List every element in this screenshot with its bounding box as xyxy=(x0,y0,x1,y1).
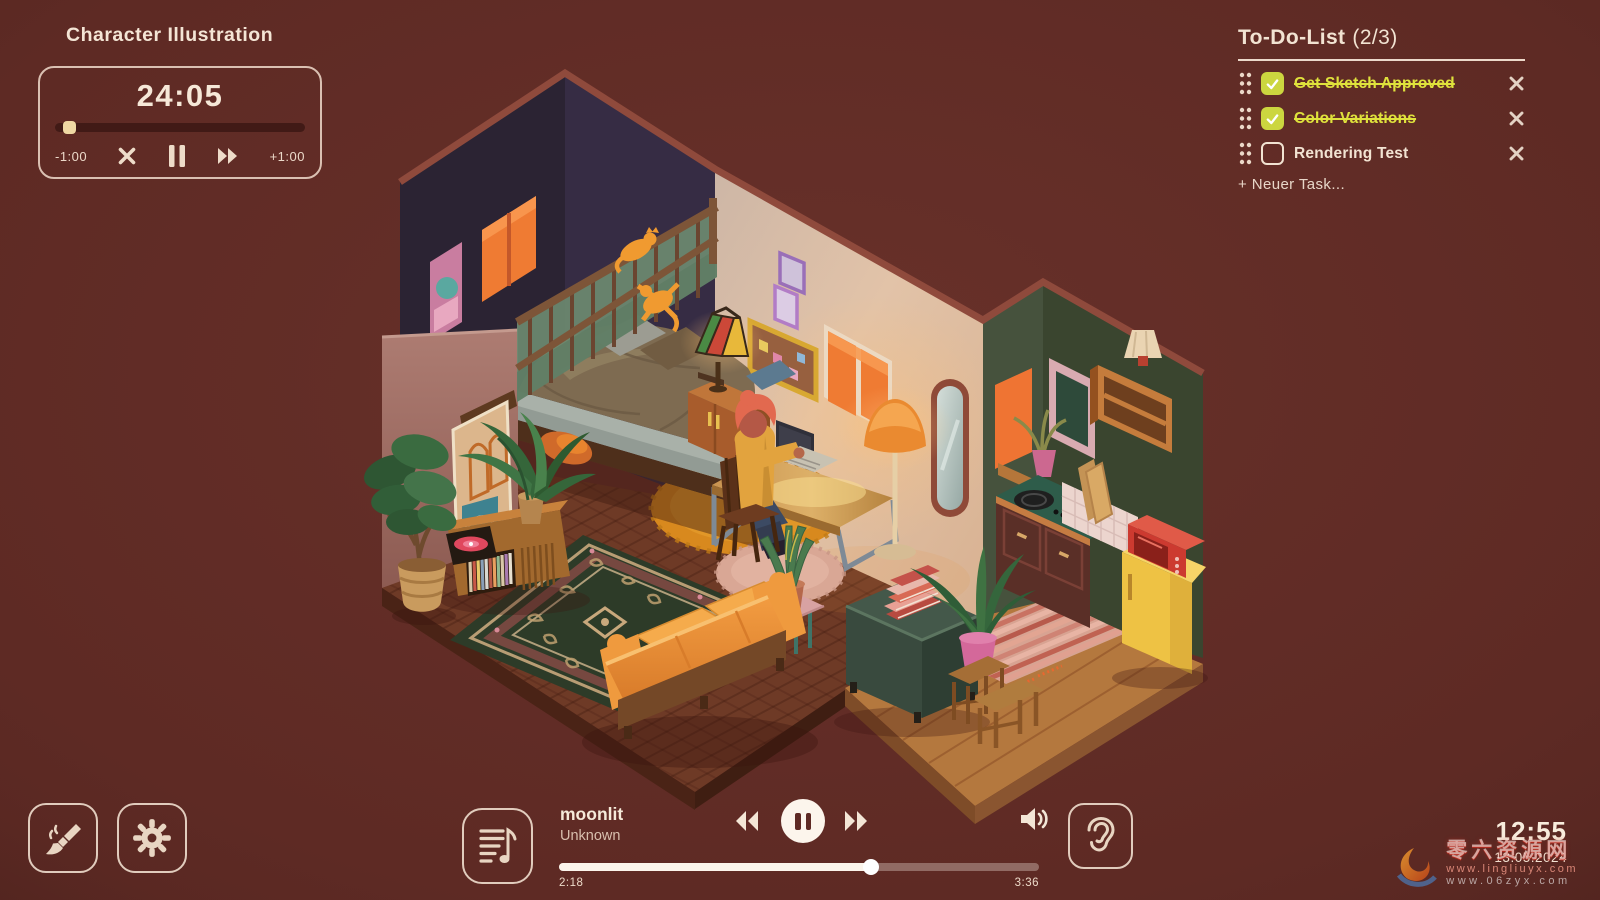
app-screen: Character Illustration 24:05 -1:00 +1:00… xyxy=(0,0,1600,900)
todo-row-1: Get Sketch Approved xyxy=(1238,71,1525,96)
todo-item-label: Color Variations xyxy=(1294,110,1416,128)
timer-cancel-button[interactable] xyxy=(117,146,137,166)
close-icon xyxy=(1508,110,1525,127)
drag-dots-icon xyxy=(1238,71,1252,96)
todo-row-3: Rendering Test xyxy=(1238,141,1525,166)
close-icon xyxy=(1508,145,1525,162)
todo-divider xyxy=(1238,59,1525,61)
timer-skip-button[interactable] xyxy=(217,147,239,165)
window-right xyxy=(995,368,1032,469)
gear-icon xyxy=(132,818,172,858)
fast-forward-icon xyxy=(217,147,239,165)
timer-progress[interactable] xyxy=(55,123,305,132)
total-time: 3:36 xyxy=(989,877,1039,889)
playlist-button[interactable] xyxy=(462,808,533,884)
timer-card: 24:05 -1:00 +1:00 xyxy=(38,66,322,179)
player-progress[interactable] xyxy=(559,863,1039,871)
player-progress-knob[interactable] xyxy=(863,859,879,875)
player-progress-fill xyxy=(559,863,871,871)
timer-plus-button[interactable]: +1:00 xyxy=(270,149,305,164)
todo-checkbox-unchecked[interactable] xyxy=(1261,142,1284,165)
elapsed-time: 2:18 xyxy=(559,877,583,889)
volume-icon xyxy=(1019,805,1049,833)
theme-brush-button[interactable] xyxy=(28,803,98,873)
song-title: moonlit xyxy=(560,804,623,825)
add-task-button[interactable]: + Neuer Task... xyxy=(1238,176,1525,193)
ambient-sound-button[interactable] xyxy=(1068,803,1133,869)
pause-icon xyxy=(167,144,187,168)
paint-brush-icon xyxy=(42,817,84,859)
todo-title: To-Do-List(2/3) xyxy=(1238,26,1525,50)
close-icon xyxy=(117,146,137,166)
clock-date: 13.05.2024 xyxy=(1494,850,1567,865)
todo-item-label: Rendering Test xyxy=(1294,145,1408,163)
pause-bar xyxy=(806,813,812,830)
clock: 12:55 13.05.2024 xyxy=(1494,816,1567,865)
todo-checkbox-checked[interactable] xyxy=(1261,107,1284,130)
todo-delete-button[interactable] xyxy=(1508,145,1525,162)
play-pause-button[interactable] xyxy=(781,799,825,843)
ear-icon xyxy=(1084,816,1118,856)
session-title: Character Illustration xyxy=(66,24,322,47)
session-panel: Character Illustration 24:05 -1:00 +1:00 xyxy=(38,24,322,179)
song-artist: Unknown xyxy=(560,828,620,844)
previous-track-button[interactable] xyxy=(735,810,759,837)
check-icon xyxy=(1265,77,1280,91)
drag-handle-icon[interactable] xyxy=(1238,71,1252,96)
drag-handle-icon[interactable] xyxy=(1238,106,1252,131)
volume-button[interactable] xyxy=(1019,805,1049,838)
clock-time: 12:55 xyxy=(1494,816,1567,847)
rewind-icon xyxy=(735,810,759,832)
playlist-music-icon xyxy=(477,823,519,869)
check-icon xyxy=(1265,112,1280,126)
todo-counter: (2/3) xyxy=(1352,26,1397,49)
next-track-button[interactable] xyxy=(844,810,868,837)
drag-dots-icon xyxy=(1238,106,1252,131)
todo-checkbox-checked[interactable] xyxy=(1261,72,1284,95)
timer-pause-button[interactable] xyxy=(167,144,187,168)
todo-title-text: To-Do-List xyxy=(1238,26,1345,49)
todo-row-2: Color Variations xyxy=(1238,106,1525,131)
drag-handle-icon[interactable] xyxy=(1238,141,1252,166)
timer-countdown: 24:05 xyxy=(55,78,305,114)
close-icon xyxy=(1508,75,1525,92)
fast-forward-icon xyxy=(844,810,868,832)
timer-controls: -1:00 +1:00 xyxy=(55,144,305,168)
todo-delete-button[interactable] xyxy=(1508,75,1525,92)
settings-button[interactable] xyxy=(117,803,187,873)
todo-item-label: Get Sketch Approved xyxy=(1294,75,1455,93)
todo-list: Get Sketch Approved Color Variations Ren… xyxy=(1238,71,1525,166)
timer-progress-knob[interactable] xyxy=(63,121,76,134)
todo-delete-button[interactable] xyxy=(1508,110,1525,127)
drag-dots-icon xyxy=(1238,141,1252,166)
todo-panel: To-Do-List(2/3) Get Sketch Approved Colo… xyxy=(1238,26,1525,193)
timer-minus-button[interactable]: -1:00 xyxy=(55,149,87,164)
pause-bar xyxy=(795,813,801,830)
